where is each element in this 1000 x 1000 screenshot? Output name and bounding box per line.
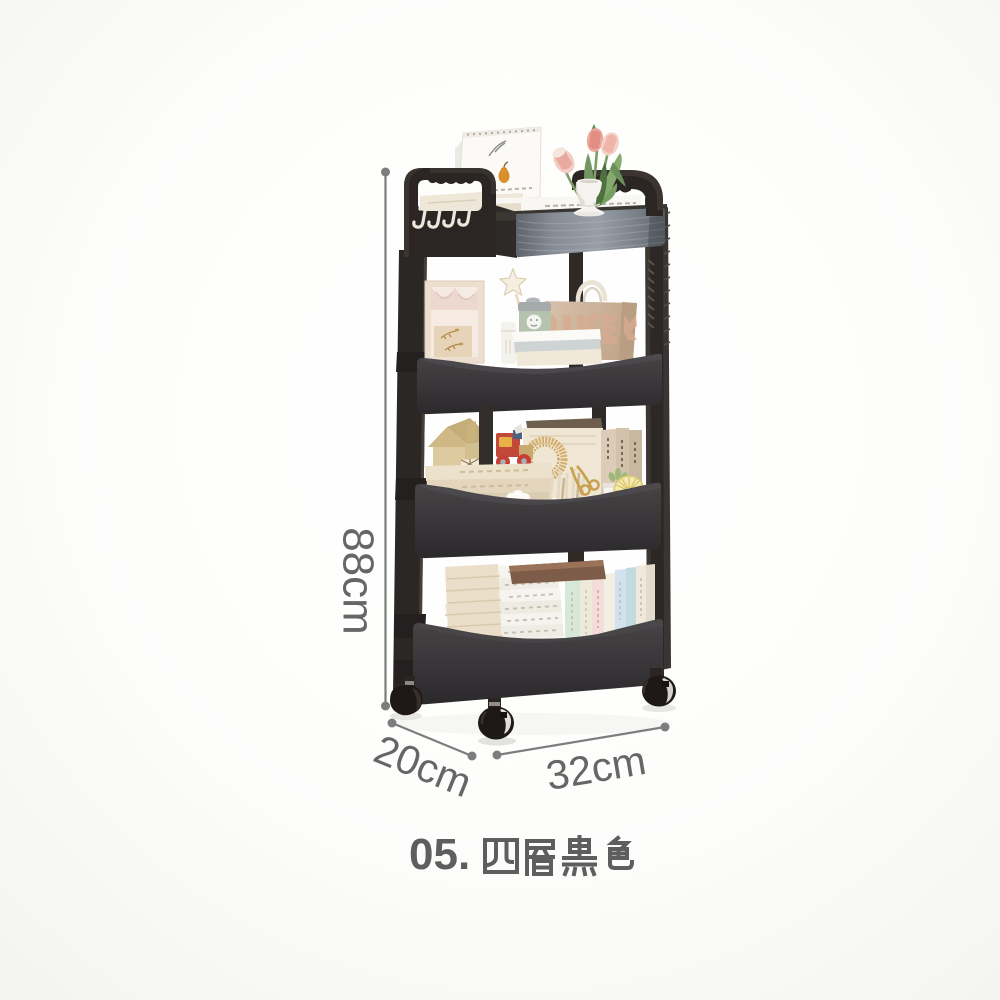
svg-text:88cm: 88cm [334, 527, 383, 635]
svg-text:05.: 05. [409, 830, 470, 879]
